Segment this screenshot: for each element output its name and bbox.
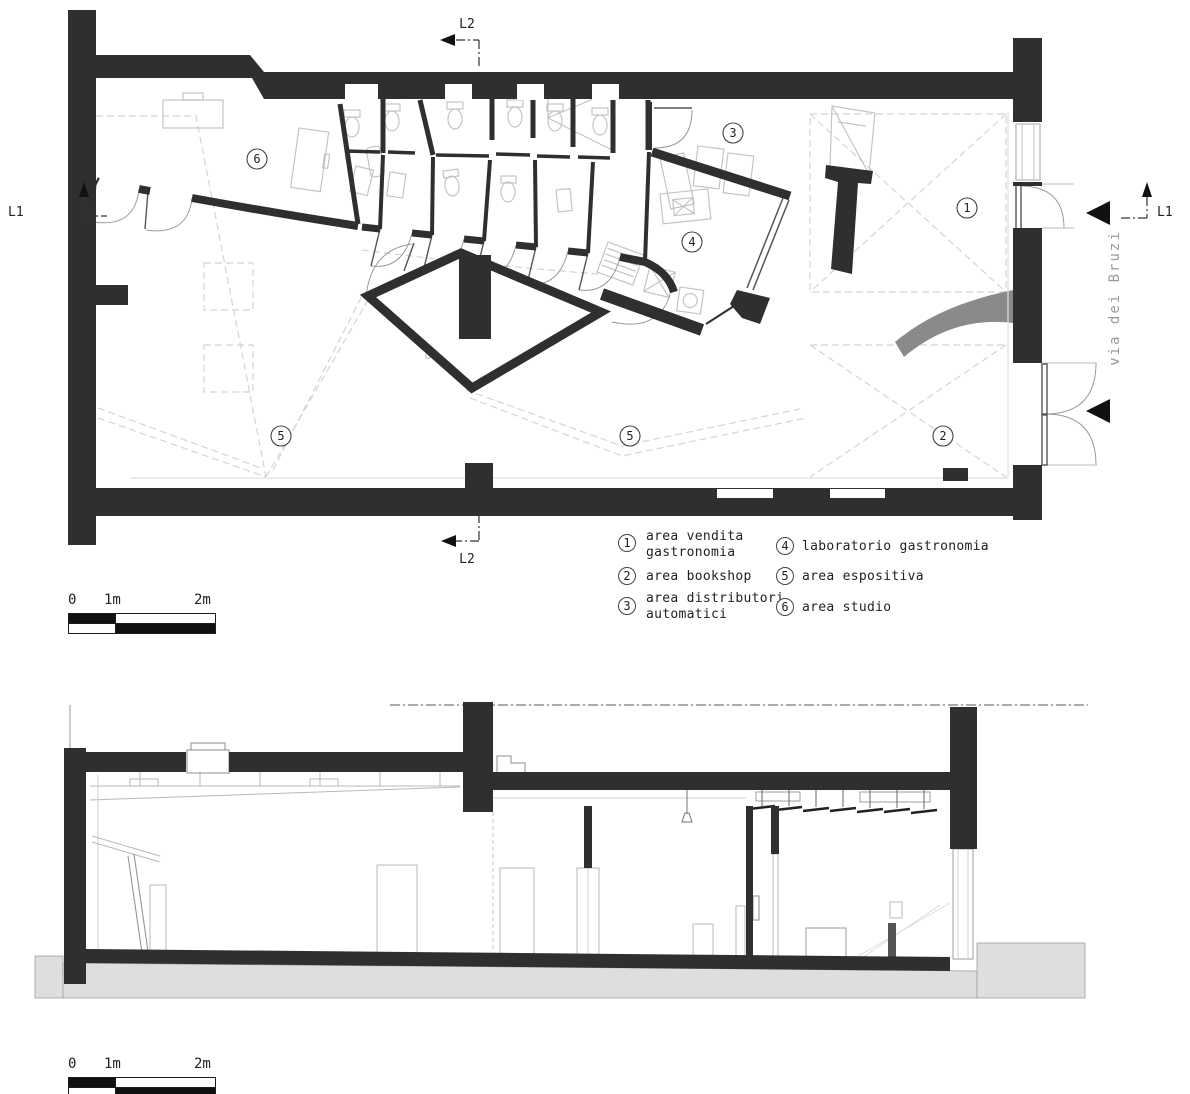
svg-text:4: 4	[688, 235, 695, 249]
floor-plan: 6 3 4 1 5 5 2	[8, 10, 1173, 567]
scale-label-2m: 2m	[194, 592, 211, 608]
area-label-5-mid: 5	[620, 426, 640, 446]
section-drawing	[35, 702, 1088, 998]
entrance-arrow-icon	[1086, 399, 1110, 423]
legend-label-1-line2: gastronomia	[646, 545, 735, 561]
section-marker-l1-right: L1	[1120, 182, 1173, 220]
legend-label-1-line1: area vendita	[646, 529, 744, 545]
plan-furniture	[163, 91, 1040, 478]
scale-label-0: 0	[68, 592, 76, 608]
legend-number-6: 6	[776, 598, 794, 616]
svg-text:5: 5	[626, 429, 633, 443]
architectural-drawing-page: 6 3 4 1 5 5 2	[0, 0, 1190, 1094]
area-label-5-left: 5	[271, 426, 291, 446]
svg-text:3: 3	[729, 126, 736, 140]
area-label-1: 1	[957, 198, 977, 218]
street-name-label: via dei Bruzi	[1107, 230, 1123, 366]
scale-bar-graphic	[68, 1077, 216, 1094]
plan-doors	[93, 108, 1097, 465]
legend: 1 area vendita gastronomia 2 area booksh…	[616, 528, 1036, 632]
cut-arrow-icon	[440, 34, 455, 46]
svg-text:L2: L2	[459, 552, 475, 567]
plan-walls	[68, 10, 1042, 545]
entrance-arrow-icon	[1086, 201, 1110, 225]
legend-number-3: 3	[618, 597, 636, 615]
svg-text:L2: L2	[459, 17, 475, 32]
section-marker-l2-bottom: L2	[441, 514, 479, 567]
scale-label-1m: 1m	[104, 592, 121, 608]
area-label-3: 3	[723, 123, 743, 143]
cut-arrow-icon	[1142, 182, 1152, 197]
svg-text:2: 2	[939, 429, 946, 443]
section-walls	[64, 702, 977, 984]
legend-label-2: area bookshop	[646, 569, 752, 585]
legend-number-5: 5	[776, 567, 794, 585]
svg-text:1: 1	[963, 201, 970, 215]
svg-text:L1: L1	[1157, 205, 1173, 220]
legend-label-5: area espositiva	[802, 569, 924, 585]
svg-text:L1: L1	[8, 205, 24, 220]
section-marker-l2-top: L2	[440, 17, 479, 68]
scale-label-1m: 1m	[104, 1056, 121, 1072]
legend-label-3-line2: automatici	[646, 607, 727, 623]
scale-bar-top: 0 1m 2m	[66, 592, 226, 638]
scale-bar-graphic	[68, 613, 216, 634]
area-label-6: 6	[247, 149, 267, 169]
legend-number-1: 1	[618, 534, 636, 552]
scale-bar-bottom: 0 1m 2m	[66, 1056, 226, 1094]
scale-label-0: 0	[68, 1056, 76, 1072]
legend-number-2: 2	[618, 567, 636, 585]
ramp	[895, 290, 1013, 357]
legend-label-3-line1: area distributori	[646, 591, 784, 607]
legend-number-4: 4	[776, 537, 794, 555]
svg-text:6: 6	[253, 152, 260, 166]
scale-label-2m: 2m	[194, 1056, 211, 1072]
area-label-4: 4	[682, 232, 702, 252]
legend-label-6: area studio	[802, 600, 891, 616]
legend-label-4: laboratorio gastronomia	[802, 539, 989, 555]
area-label-2: 2	[933, 426, 953, 446]
cut-arrow-icon	[441, 535, 456, 547]
central-island	[368, 253, 601, 388]
section-interior	[70, 705, 973, 962]
svg-text:5: 5	[277, 429, 284, 443]
